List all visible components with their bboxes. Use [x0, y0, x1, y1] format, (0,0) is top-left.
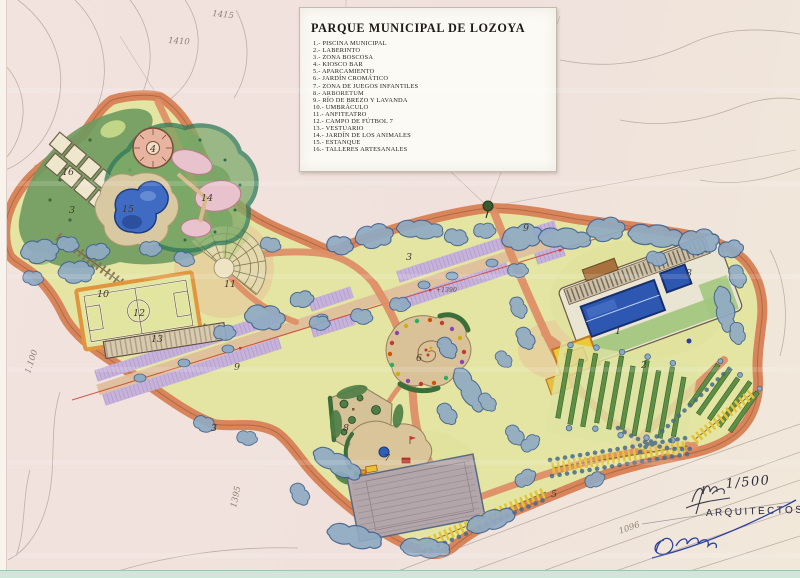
label-estanque: 15 [122, 204, 134, 215]
label-boscosa-c: 3 [686, 268, 692, 279]
legend-item-15: 15.- ESTANQUE [313, 139, 556, 146]
contour-label-1395: 1395 [229, 485, 243, 508]
label-boscosa-b: 3 [406, 252, 412, 263]
legend-items: 1.- PISCINA MUNICIPAL 2.- LABERINTO 3.- … [300, 40, 556, 154]
label-umbraculo: 10 [97, 289, 109, 300]
scale-note: 1/500 [725, 473, 771, 492]
contour-label-1410: 1410 [168, 36, 191, 48]
legend-sheet: PARQUE MUNICIPAL DE LOZOYA 1.- PISCINA M… [299, 7, 557, 172]
legend-item-9: 9.- RÍO DE BREZO Y LAVANDA [313, 97, 556, 104]
label-aparcamiento: 5 [551, 489, 557, 500]
label-cromatico: 6 [416, 353, 422, 364]
label-laberinto: 2 [640, 360, 647, 371]
label-boscosa-a: 3 [69, 205, 75, 216]
label-animales: 14 [201, 193, 213, 204]
label-vestuario: 13 [151, 334, 163, 345]
legend-item-16: 16.- TALLERES ARTESANALES [313, 146, 556, 153]
legend-item-7: 7.- ZONA DE JUEGOS INFANTILES [313, 83, 556, 90]
legend-item-6: 6.- JARDÍN CROMÁTICO [313, 75, 556, 82]
label-kiosco: 4 [149, 144, 156, 155]
label-boscosa-d: 3 [211, 423, 217, 434]
legend-item-12: 12.- CAMPO DE FÚTBOL 7 [313, 118, 556, 125]
label-talleres: 16 [62, 167, 74, 178]
credit-text: ARQUITECTOS [706, 505, 800, 519]
legend-item-8: 8.- ARBORETUM [313, 90, 556, 97]
scanned-park-plan: 1 2 3 3 3 3 4 5 6 7 8 9 9 10 11 12 13 14… [0, 0, 800, 578]
legend-item-4: 4.- KIOSCO BAR [313, 61, 556, 68]
contour-label-1096: 1096 [618, 520, 642, 537]
label-rio-a: 9 [234, 362, 240, 373]
estanque-pond [95, 173, 178, 246]
legend-item-1: 1.- PISCINA MUNICIPAL [313, 40, 556, 47]
label-juegos: 7 [384, 453, 391, 464]
legend-item-11: 11.- ANFITEATRO [313, 111, 556, 118]
label-piscina: 1 [615, 326, 621, 337]
scanner-bottom-strip [0, 570, 800, 578]
legend-item-10: 10.- UMBRÁCULO [313, 104, 556, 111]
paper-left-edge [0, 0, 7, 578]
legend-item-14: 14.- JARDÍN DE LOS ANIMALES [313, 132, 556, 139]
label-rio-b: 9 [523, 223, 529, 234]
contour-label-1415: 1415 [212, 9, 235, 21]
legend-item-3: 3.- ZONA BOSCOSA [313, 54, 556, 61]
spot-elevation: +1390 [436, 287, 457, 294]
label-futbol: 12 [133, 308, 145, 319]
title-block: 1/500 ARQUITECTOS [642, 473, 800, 558]
contour-label-1100: 1.100 [23, 348, 40, 375]
legend-item-2: 2.- LABERINTO [313, 47, 556, 54]
label-anfiteatro: 11 [224, 279, 236, 290]
legend-title: PARQUE MUNICIPAL DE LOZOYA [300, 8, 556, 40]
blue-ink-dot [687, 339, 692, 344]
label-arboretum: 8 [343, 423, 349, 434]
